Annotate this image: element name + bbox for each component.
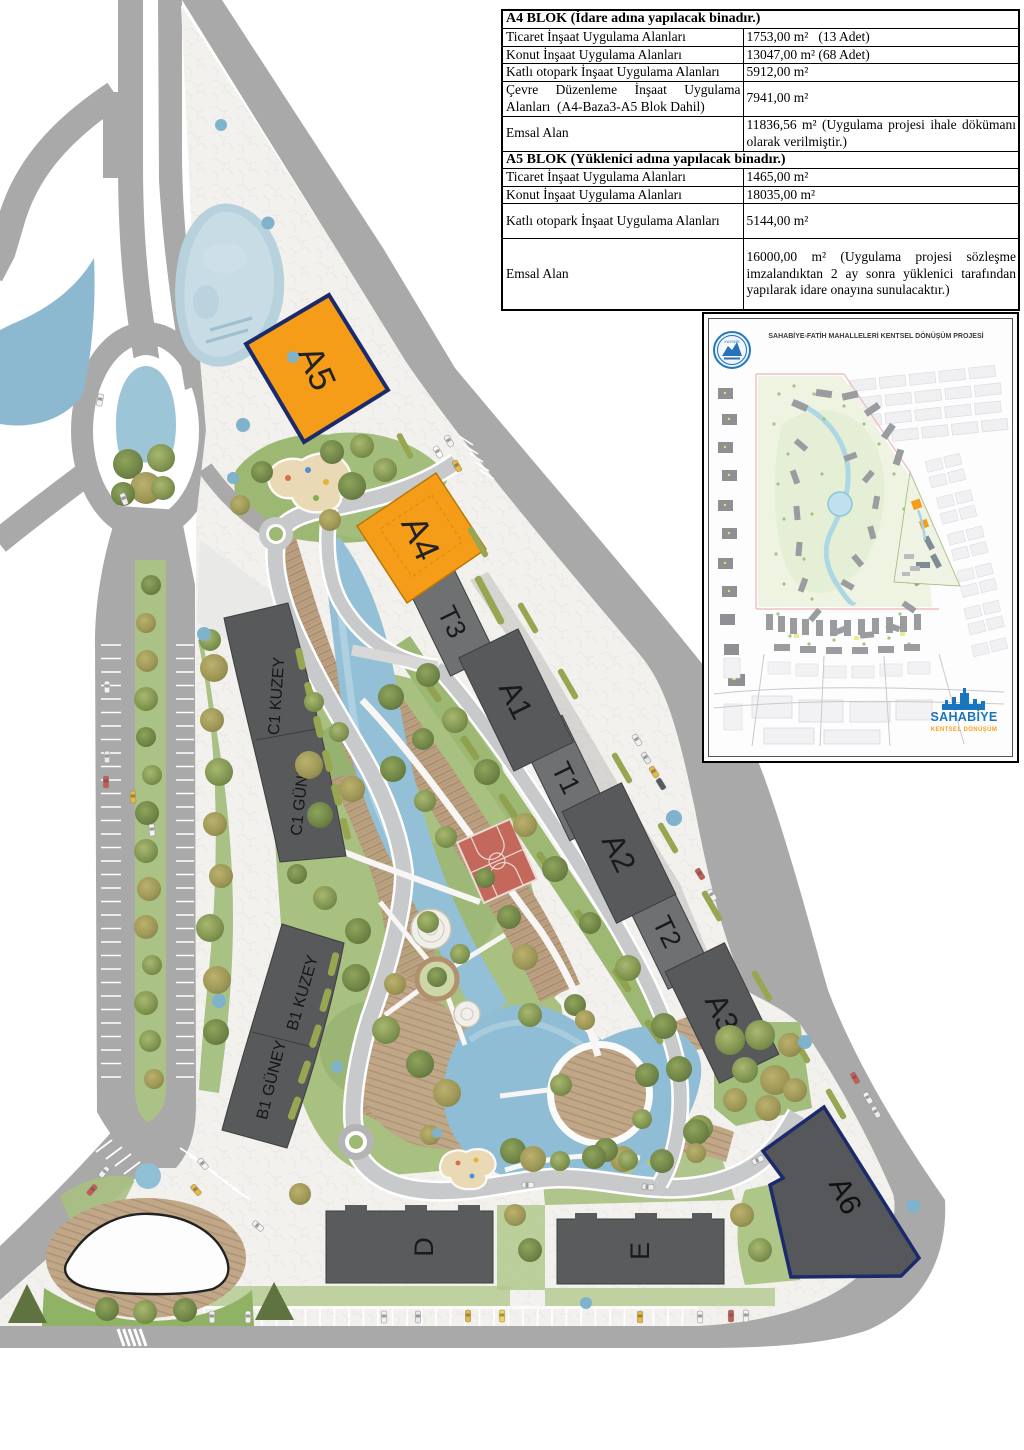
svg-text:SAHABİYE-FATİH MAHALLELERİ KEN: SAHABİYE-FATİH MAHALLELERİ KENTSEL DÖNÜŞ… (768, 331, 983, 340)
svg-text:D: D (409, 1237, 439, 1257)
svg-text:SAHABİYE: SAHABİYE (931, 709, 998, 724)
svg-text:E: E (625, 1242, 655, 1260)
svg-text:KENTSEL DÖNÜŞÜM: KENTSEL DÖNÜŞÜM (931, 726, 998, 733)
svg-text:KAYSERİ: KAYSERİ (725, 339, 740, 344)
